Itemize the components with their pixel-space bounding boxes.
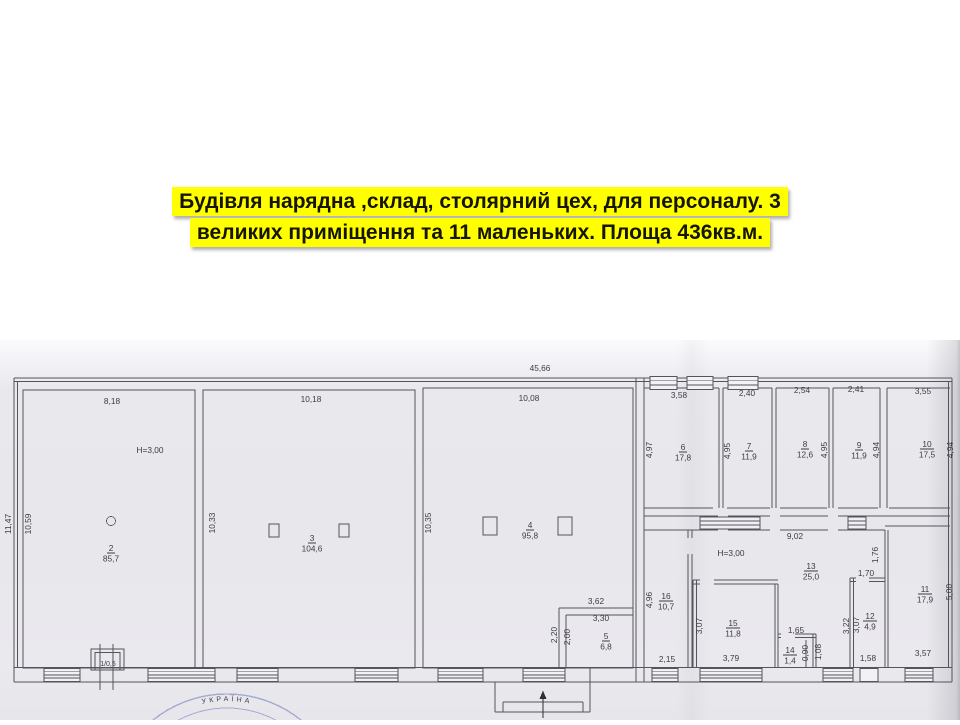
room-number: 6: [681, 442, 686, 452]
floorplan-photo: 45,668,1810,1810,08Н=3,003,582,402,542,4…: [0, 340, 960, 720]
room-area: 17,8: [675, 453, 692, 463]
dimension-label: Н=3,00: [137, 445, 164, 455]
description-banner: Будівля нарядна ,склад, столярний цех, д…: [0, 186, 960, 248]
floorplan-svg: 45,668,1810,1810,08Н=3,003,582,402,542,4…: [0, 340, 960, 720]
dimension-label: 1,76: [870, 547, 880, 564]
room-number: 7: [747, 441, 752, 451]
room-area: 11,9: [741, 452, 757, 462]
dimension-label: 8,18: [104, 396, 121, 406]
corridor-glazing: [700, 517, 866, 529]
room-number: 12: [865, 611, 875, 621]
room-number: 16: [661, 591, 671, 601]
slide: Будівля нарядна ,склад, столярний цех, д…: [0, 0, 960, 720]
dimension-label: 1/0,5: [100, 661, 116, 668]
stamp-arc-text: УКРАЇНА: [201, 695, 253, 706]
room-area: 25,0: [803, 572, 820, 582]
dimension-label: 3,57: [915, 648, 932, 658]
plan-labels: 45,668,1810,1810,08Н=3,003,582,402,542,4…: [3, 363, 955, 706]
dimension-label: 3,22: [841, 618, 851, 635]
dimension-label: 2,20: [549, 627, 559, 644]
dimension-label: 3,55: [915, 386, 932, 396]
dimension-label: 3,07: [694, 618, 704, 635]
room-number: 9: [857, 440, 862, 450]
dimension-label: 4,95: [722, 443, 732, 460]
dimension-label: 4,96: [644, 592, 654, 609]
room-number: 14: [785, 645, 795, 655]
room-area: 11,8: [725, 629, 741, 639]
dimension-label: 10,59: [23, 513, 33, 534]
room-area: 12,6: [797, 450, 814, 460]
room-number: 10: [922, 439, 932, 449]
dimension-label: 2,40: [739, 388, 756, 398]
dimension-label: 0,90: [800, 645, 810, 662]
dimension-label: 45,66: [530, 363, 551, 373]
room-number: 4: [528, 520, 533, 530]
dimension-label: 4,94: [945, 442, 955, 459]
dimension-label: Н=3,00: [718, 548, 745, 558]
room-number: 15: [728, 618, 738, 628]
dimension-label: 10,08: [519, 393, 540, 403]
room-area: 85,7: [103, 554, 120, 564]
dimension-label: 10,35: [423, 512, 433, 533]
dimension-label: 1,08: [813, 644, 823, 661]
dimension-label: 4,95: [819, 442, 829, 459]
dimension-label: 5,00: [944, 584, 954, 601]
room-number: 5: [604, 631, 609, 641]
banner-line-2: великих приміщення та 11 маленьких. Площ…: [190, 218, 770, 247]
dimension-label: 2,00: [562, 629, 572, 646]
room-area: 17,5: [919, 450, 936, 460]
dimension-label: 2,54: [794, 385, 811, 395]
room-area: 95,8: [522, 531, 539, 541]
dimension-label: 3,30: [593, 613, 610, 623]
room-area: 17,9: [917, 595, 934, 605]
dimension-label: 3,62: [588, 596, 605, 606]
dimension-label: 2,41: [848, 384, 865, 394]
room-number: 13: [806, 561, 816, 571]
dimension-label: 4,94: [871, 442, 881, 459]
room-number: 2: [109, 543, 114, 553]
dimension-label: 2,15: [659, 654, 676, 664]
room-area: 6,8: [600, 642, 612, 652]
entrance-arrow: [540, 691, 547, 719]
dimension-label: 1,70: [858, 568, 875, 578]
room-area: 10,7: [658, 602, 675, 612]
dimension-label: 1,65: [788, 625, 805, 635]
room-area: 11,9: [851, 451, 867, 461]
room-number: 11: [921, 584, 930, 594]
banner-line-1: Будівля нарядна ,склад, столярний цех, д…: [172, 187, 788, 216]
dimension-label: 3,07: [851, 617, 861, 634]
room-area: 104,6: [302, 544, 323, 554]
room-area: 1,4: [784, 656, 796, 666]
dimension-label: 10,18: [301, 394, 322, 404]
room-area: 4,9: [864, 622, 876, 632]
dimension-label: 4,97: [644, 442, 654, 459]
room-number: 3: [310, 533, 315, 543]
dimension-label: 3,58: [671, 390, 688, 400]
room-number: 8: [803, 439, 808, 449]
dimension-label: 3,79: [723, 653, 740, 663]
dimension-label: 11,47: [3, 514, 13, 535]
bottom-windows: [44, 669, 933, 682]
dimension-label: 10,33: [207, 512, 217, 533]
dimension-label: 1,58: [860, 653, 877, 663]
dimension-label: 9,02: [787, 531, 804, 541]
